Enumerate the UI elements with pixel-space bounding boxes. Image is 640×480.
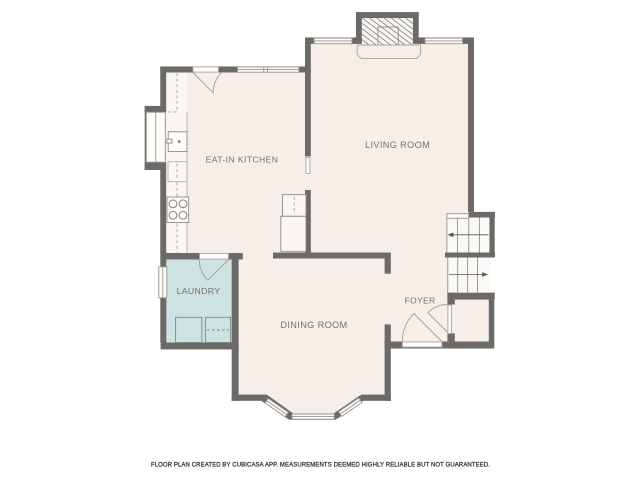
svg-text:FOYER: FOYER xyxy=(405,296,436,306)
svg-text:DINING ROOM: DINING ROOM xyxy=(280,320,347,330)
svg-text:EAT-IN KITCHEN: EAT-IN KITCHEN xyxy=(206,154,279,164)
svg-text:LIVING ROOM: LIVING ROOM xyxy=(365,140,430,150)
svg-text:FLOOR PLAN CREATED BY CUBICASA: FLOOR PLAN CREATED BY CUBICASA APP. MEAS… xyxy=(151,462,490,468)
svg-text:LAUNDRY: LAUNDRY xyxy=(177,286,221,296)
